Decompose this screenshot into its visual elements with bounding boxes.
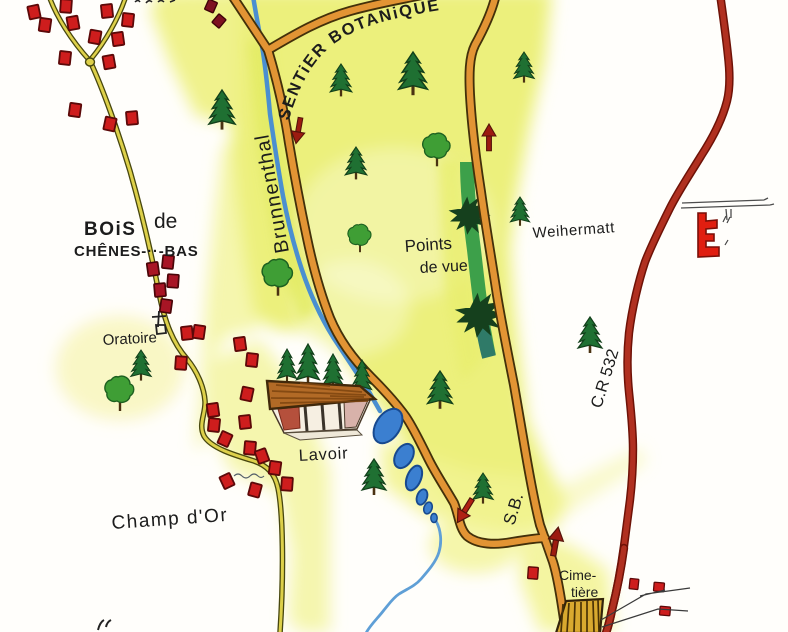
svg-text:de vue: de vue <box>419 257 468 276</box>
svg-text:Lavoir: Lavoir <box>298 444 349 465</box>
svg-text:CHÊNES-··-BAS: CHÊNES-··-BAS <box>74 242 199 260</box>
svg-text:de: de <box>154 210 177 233</box>
svg-text:Points: Points <box>404 234 452 256</box>
svg-text:BOiS: BOiS <box>84 219 136 240</box>
svg-text:Oratoire: Oratoire <box>102 329 157 349</box>
svg-text:Cime-: Cime- <box>559 567 597 583</box>
svg-text:tière: tière <box>571 584 598 600</box>
